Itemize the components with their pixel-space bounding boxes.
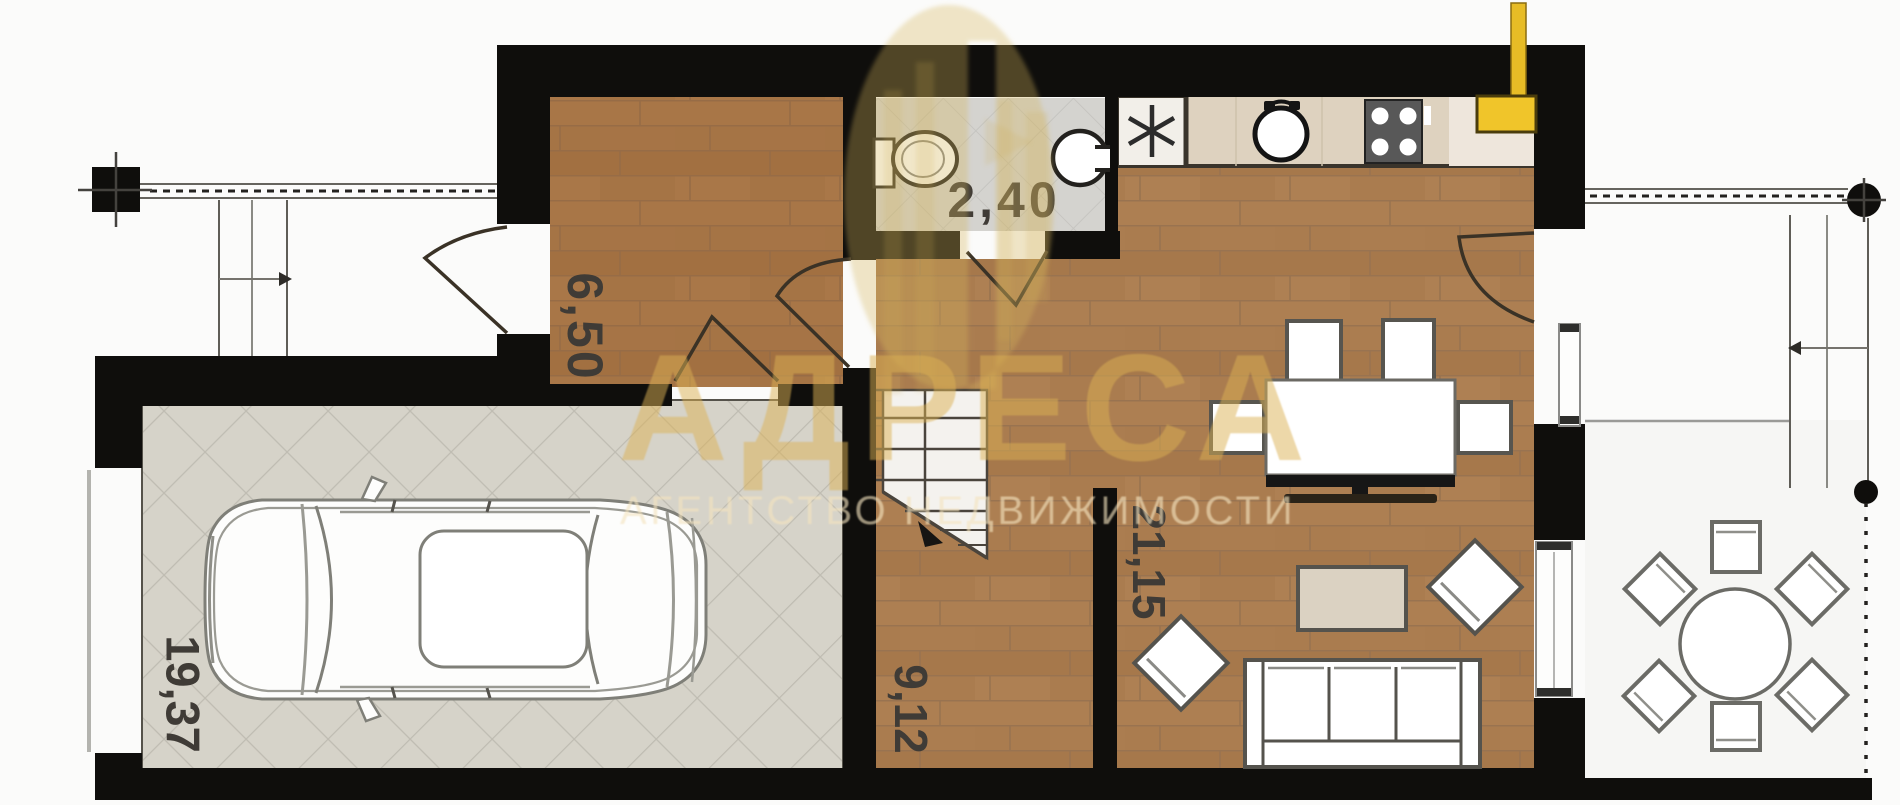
svg-text:9,12: 9,12 (885, 664, 937, 754)
svg-text:6,50: 6,50 (557, 272, 613, 381)
svg-text:АДРЕСА: АДРЕСА (618, 323, 1314, 493)
svg-text:19,37: 19,37 (157, 635, 210, 753)
svg-text:АГЕНТСТВО НЕДВИЖИМОСТИ: АГЕНТСТВО НЕДВИЖИМОСТИ (620, 489, 1296, 533)
